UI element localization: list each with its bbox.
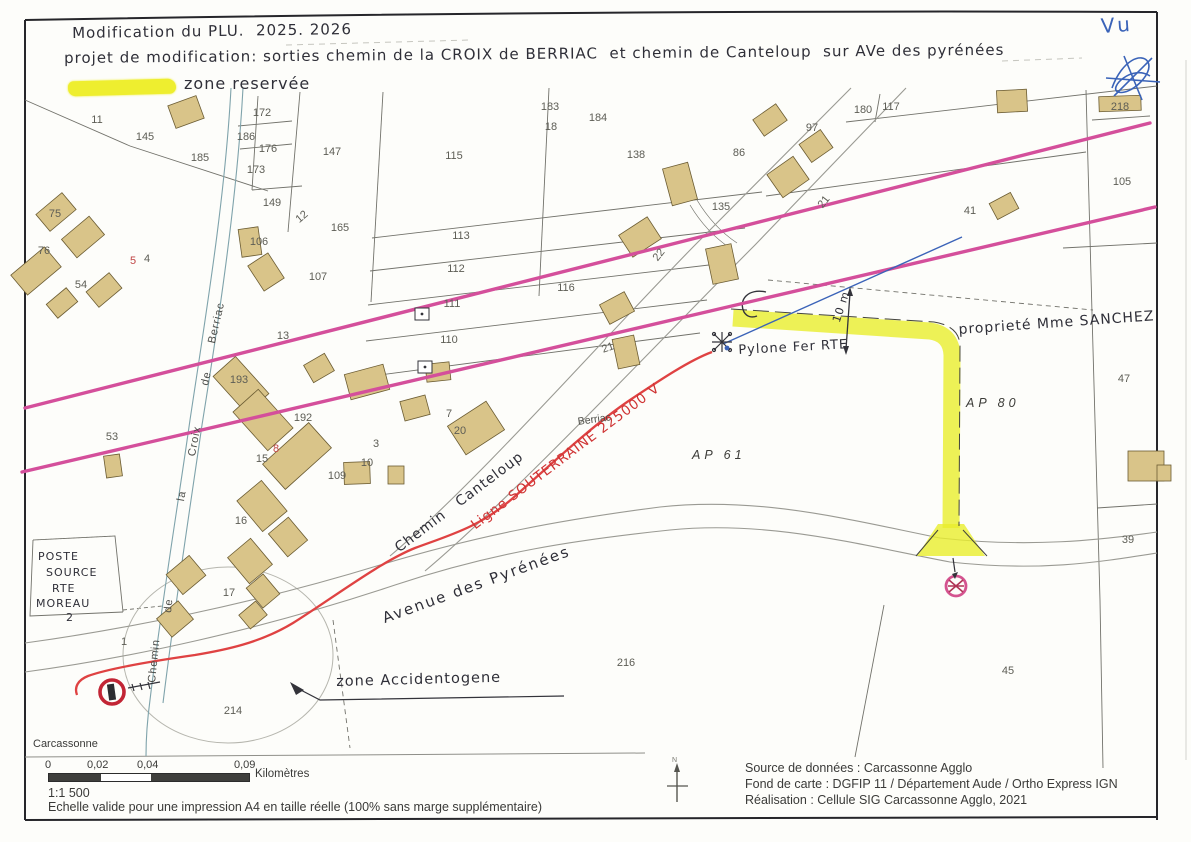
scale-unit: Kilomètres [255, 768, 309, 780]
parcel-number: 20 [454, 425, 466, 437]
credit-line: Réalisation : Cellule SIG Carcassonne Ag… [745, 792, 1027, 808]
parcel-number: 3 [373, 438, 379, 450]
parcel-number: 106 [250, 236, 268, 248]
parcel-number: 54 [75, 279, 87, 291]
parcel-number: 112 [447, 263, 465, 275]
ap80-label: AP 80 [966, 396, 1020, 410]
north-arrow-icon: N [667, 757, 688, 802]
exit-marker-circle [100, 558, 966, 704]
parcel-number: 97 [806, 122, 818, 134]
ap61-label: AP 61 [692, 448, 746, 462]
parcel-number: 117 [882, 101, 900, 113]
parcel-number: 7 [446, 408, 452, 420]
credit-line: Source de données : Carcassonne Agglo [745, 760, 972, 776]
poste-source-line: RTE [52, 582, 76, 595]
vu-stamp: Vu [1100, 12, 1135, 38]
parcel-number: 145 [136, 131, 154, 143]
scale-bar [48, 773, 250, 782]
parcel-number: 45 [1002, 665, 1014, 677]
parcel-number: 109 [328, 470, 346, 482]
parcel-number: 110 [440, 334, 458, 346]
parcel-number: 75 [49, 208, 61, 220]
poste-source-line: SOURCE [46, 566, 97, 579]
parcel-number: 172 [253, 107, 271, 119]
scale-note: Echelle valide pour une impression A4 en… [48, 800, 542, 814]
parcel-number: 186 [237, 131, 255, 143]
parcel-number: 115 [445, 150, 463, 162]
parcel-number: 41 [964, 205, 976, 217]
poste-source-line: MOREAU [36, 597, 90, 610]
parcel-number: 113 [452, 230, 470, 242]
reserved-zone-highlight [731, 291, 987, 556]
parcel-number: 16 [235, 515, 247, 527]
parcel-number: 216 [617, 657, 635, 669]
scale-tick: 0,04 [137, 759, 158, 771]
parcel-number: 39 [1122, 534, 1134, 546]
scanned-plan-page: N Modification du PLU. 2025. 2026 projet… [0, 0, 1191, 842]
poste-source-line: 2 [66, 611, 74, 624]
parcel-number: 86 [733, 147, 745, 159]
parcel-number: 17 [223, 587, 235, 599]
parcel-number: 192 [294, 412, 312, 424]
parcel-number: 135 [712, 201, 730, 213]
scale-bar-segment [49, 774, 101, 781]
parcel-number: 18 [545, 121, 557, 133]
buildings [11, 89, 1171, 637]
parcel-number: 147 [323, 146, 341, 158]
carcassonne-label: Carcassonne [33, 738, 98, 750]
parcel-number: 185 [191, 152, 209, 164]
parcel-number: 76 [38, 245, 50, 257]
parcel-number: 218 [1111, 101, 1129, 113]
parcel-number: 173 [247, 164, 265, 176]
reserved-zone-swatch [68, 79, 176, 97]
street-name-segment: la [175, 490, 189, 502]
parcel-number: 47 [1118, 373, 1130, 385]
poste-source-line: POSTE [38, 550, 79, 563]
parcel-number: 1 [121, 636, 127, 648]
pylon-symbol [712, 332, 732, 352]
parcel-number: 5 [130, 255, 136, 267]
scale-tick: 0 [45, 759, 51, 771]
parcel-number: 184 [589, 112, 607, 124]
scale-bar-segment [101, 774, 151, 781]
parcel-number: 13 [277, 330, 289, 342]
svg-text:N: N [672, 757, 677, 764]
parcel-number: 107 [309, 271, 327, 283]
parcel-number: 105 [1113, 176, 1131, 188]
parcel-number: 15 [256, 453, 268, 465]
scale-ratio: 1:1 500 [48, 786, 90, 800]
parcel-number: 214 [224, 705, 242, 717]
parcel-number: 8 [273, 443, 279, 455]
parcel-number: 176 [259, 143, 277, 155]
parcel-number: 10 [361, 457, 373, 469]
scale-tick: 0,09 [234, 759, 255, 771]
credit-line: Fond de carte : DGFIP 11 / Département A… [745, 776, 1118, 792]
reserved-zone-label: zone reservée [184, 74, 310, 93]
parcel-number: 193 [230, 374, 248, 386]
scale-bar-segment [151, 774, 249, 781]
parcel-number: 4 [144, 253, 150, 265]
parcel-number: 180 [854, 104, 872, 116]
line-marker-square [415, 308, 432, 373]
road-avenue-pyrenees [25, 528, 1157, 672]
street-name-segment: de [162, 598, 175, 613]
parcel-number: 138 [627, 149, 645, 161]
parcel-number: 165 [331, 222, 349, 234]
scale-tick: 0,02 [87, 759, 108, 771]
parcel-number: 116 [557, 282, 575, 294]
signature-scribble [1106, 56, 1160, 100]
parcel-number: 53 [106, 431, 118, 443]
parcel-number: 11 [91, 114, 102, 126]
parcel-number: 111 [444, 298, 461, 310]
parcel-number: 149 [263, 197, 281, 209]
parcel-number: 183 [541, 101, 559, 113]
underground-line-red [76, 352, 712, 695]
